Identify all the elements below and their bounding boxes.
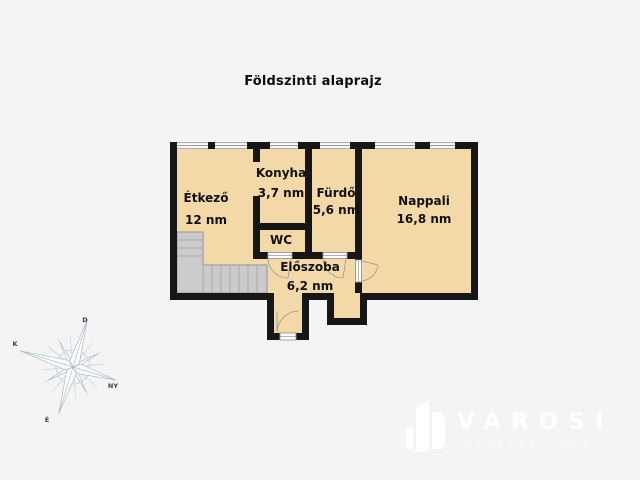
floor-surface bbox=[177, 149, 471, 333]
compass-label-north: É bbox=[45, 415, 49, 424]
buildings-icon bbox=[402, 400, 448, 456]
compass-label-south: D bbox=[82, 316, 88, 324]
floor-entry-corridor bbox=[274, 293, 302, 333]
wall-living-west-lower bbox=[355, 282, 362, 293]
window bbox=[270, 142, 298, 149]
logo-subtitle: INGATLANIRODA bbox=[457, 440, 613, 449]
window bbox=[430, 142, 455, 149]
wall-hall-north-a bbox=[253, 252, 268, 259]
floor-plan-page: Földszinti alaprajz bbox=[0, 0, 640, 480]
wall-kitchen-west-stub bbox=[253, 149, 260, 162]
window bbox=[375, 142, 415, 149]
wall-entry-nub-left bbox=[274, 333, 280, 340]
compass-label-west: NY bbox=[108, 382, 118, 390]
wall-west bbox=[170, 149, 177, 300]
wall-south-mid bbox=[302, 293, 334, 300]
wall-south-right bbox=[360, 293, 478, 300]
compass-label-east: K bbox=[12, 340, 18, 348]
wall-kitchen-bath-divider bbox=[305, 149, 312, 258]
wall-east bbox=[471, 149, 478, 300]
wall-bath-living-divider bbox=[355, 149, 362, 260]
window bbox=[215, 142, 247, 149]
compass-rose: D K NY É bbox=[8, 310, 123, 425]
wall-south-left bbox=[170, 293, 267, 300]
agency-logo: VÁROSI INGATLANIRODA bbox=[402, 400, 613, 456]
floor-bumpout bbox=[334, 293, 360, 318]
wall-hall-north-b bbox=[292, 252, 323, 259]
compass-star bbox=[8, 310, 123, 425]
wall-bumpout-left bbox=[327, 300, 334, 318]
wall-corridor-left bbox=[267, 293, 274, 340]
wall-bumpout-bottom bbox=[327, 318, 367, 325]
compass-main-spikes bbox=[8, 310, 123, 425]
logo-name: VÁROSI bbox=[457, 409, 613, 435]
logo-text: VÁROSI INGATLANIRODA bbox=[457, 400, 613, 449]
window bbox=[320, 142, 350, 149]
wall-corridor-right bbox=[302, 300, 309, 340]
window bbox=[177, 142, 208, 149]
wall-kitchen-wc-divider bbox=[253, 223, 312, 230]
